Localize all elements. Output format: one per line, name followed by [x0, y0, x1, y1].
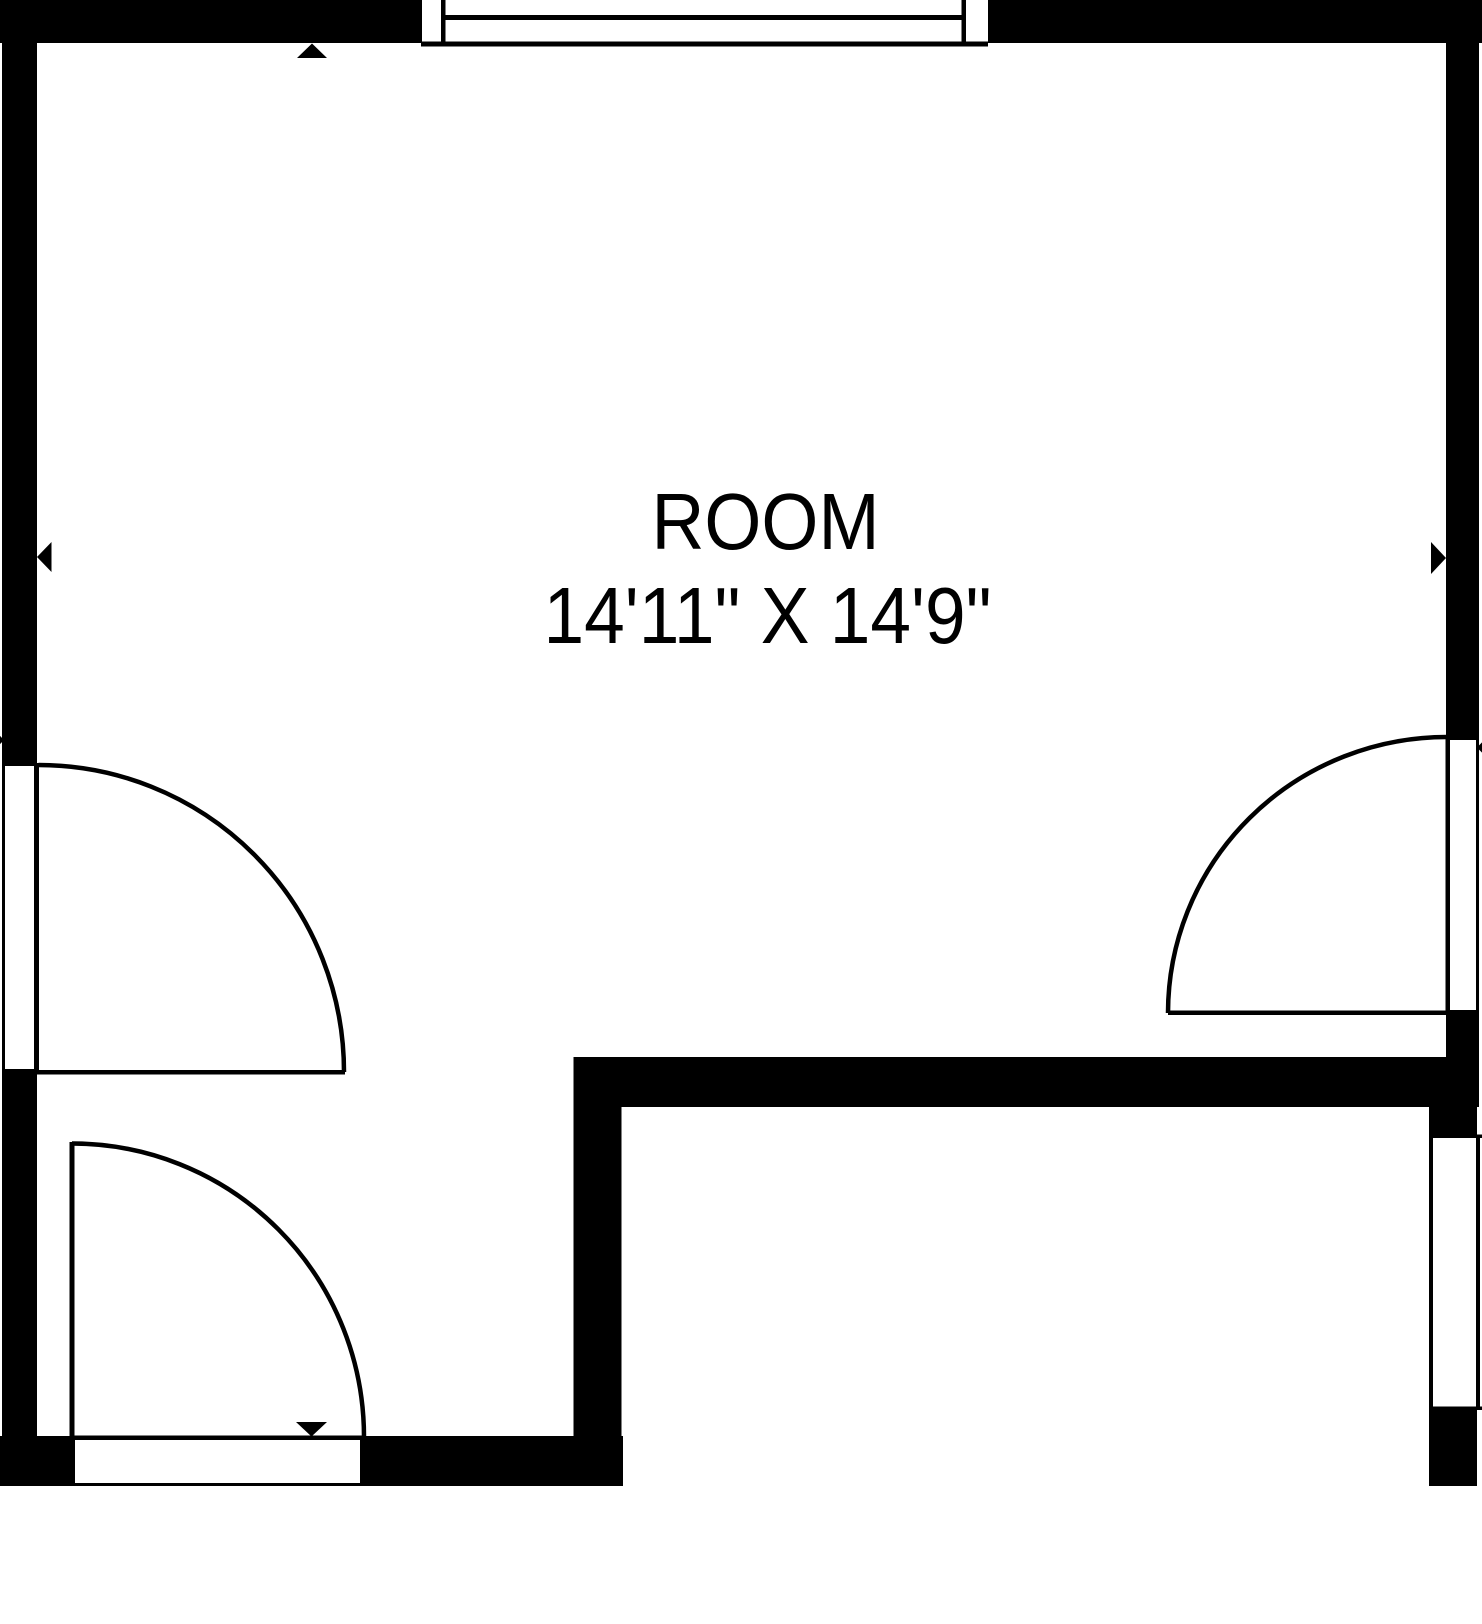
svg-text:ROOM: ROOM	[652, 477, 880, 566]
svg-text:14'11" X 14'9": 14'11" X 14'9"	[544, 571, 992, 660]
